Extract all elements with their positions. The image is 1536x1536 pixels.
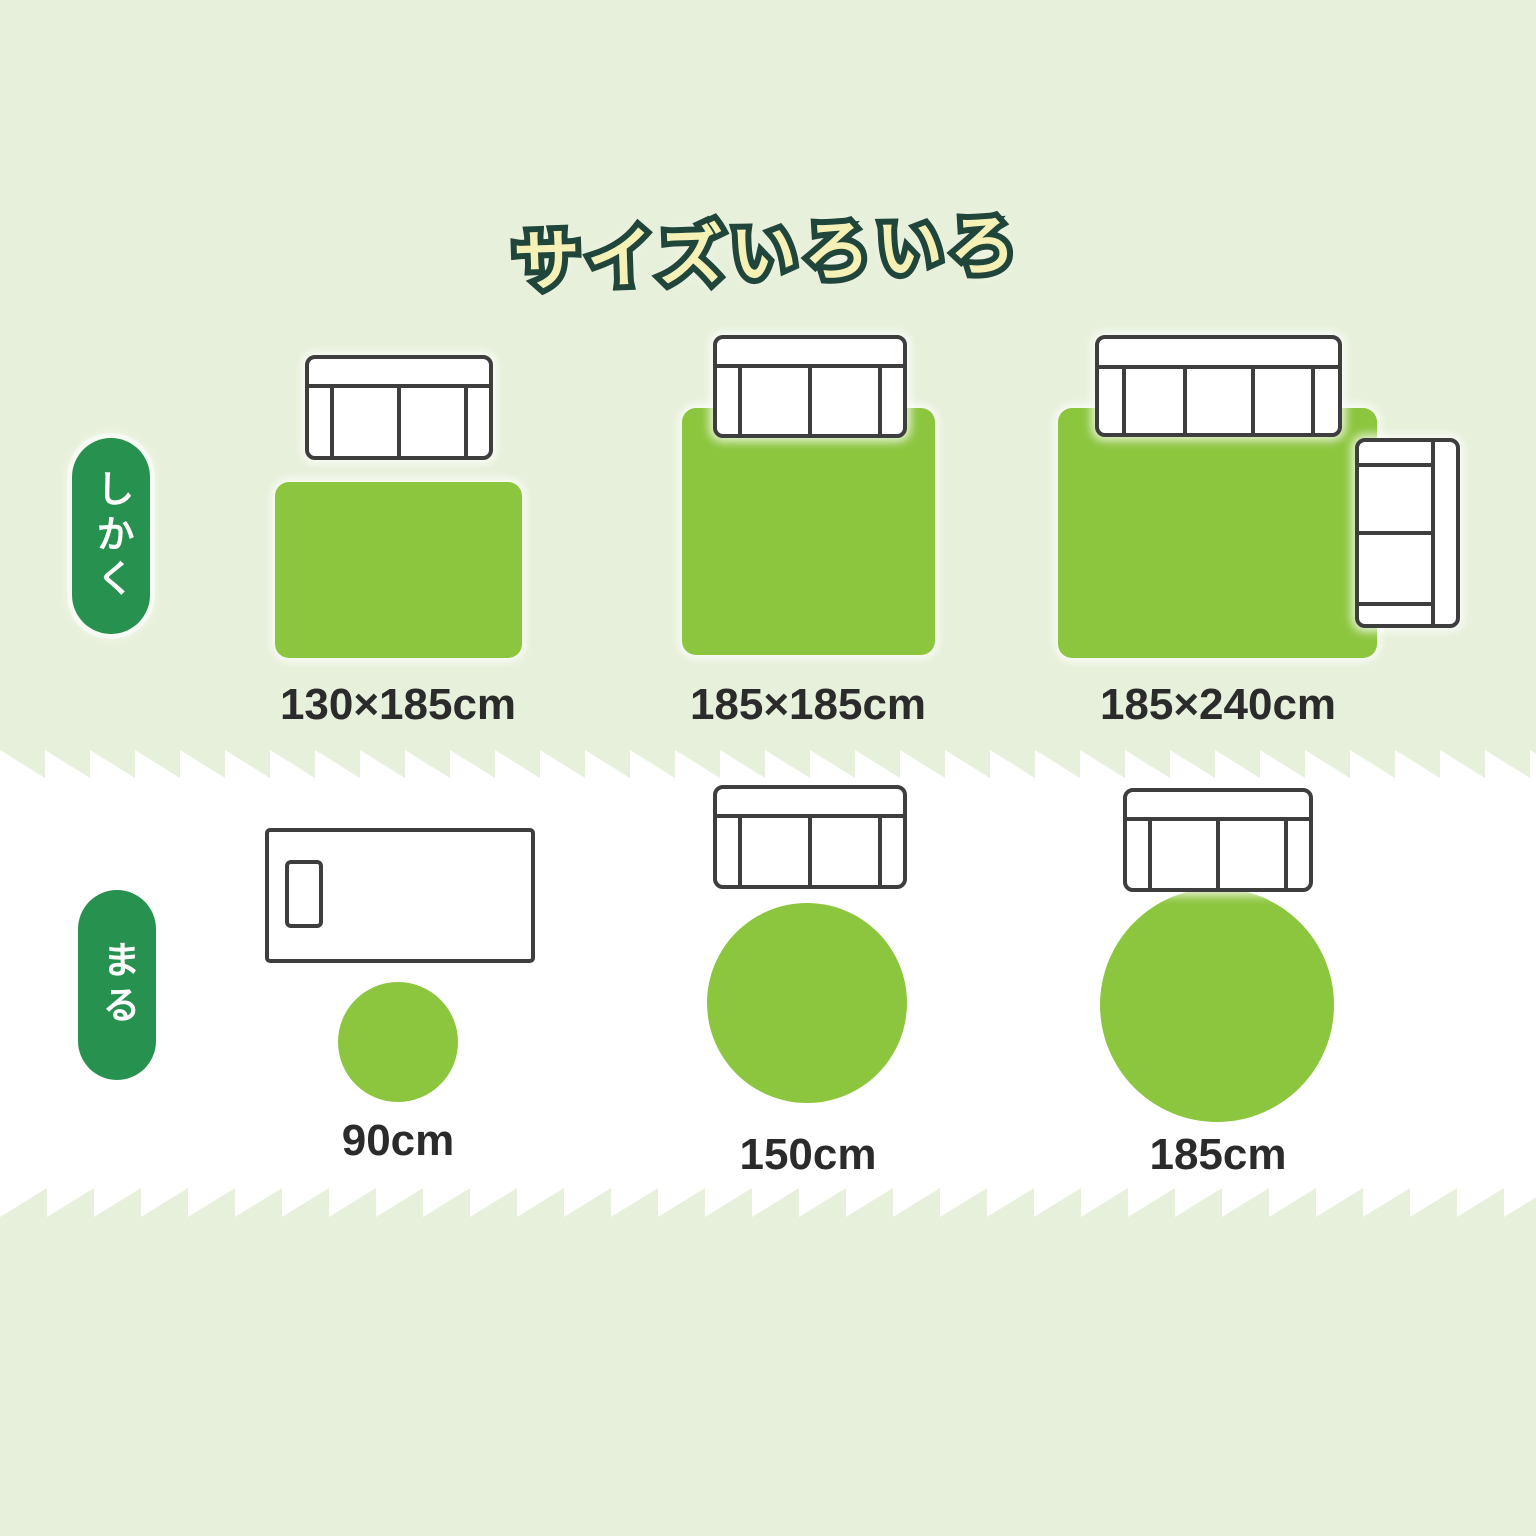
rug-rect-185x240 xyxy=(1058,408,1377,658)
sofa-seat-divider-line xyxy=(1216,817,1220,888)
sofa-armrest-line xyxy=(464,384,468,456)
badge-shikaku: しかく xyxy=(72,438,150,634)
sofa-armrest-line xyxy=(738,814,742,885)
sofa-armrest-line xyxy=(738,364,742,434)
sofa-2seat-top-view-icon xyxy=(1123,788,1313,892)
size-label-185: 185cm xyxy=(1048,1130,1388,1180)
sofa-2seat-top-view-icon xyxy=(713,785,907,889)
sofa-armrest-line xyxy=(878,364,882,434)
sofa-armrest-line xyxy=(1311,365,1315,433)
sofa-armrest-line xyxy=(1359,602,1431,606)
rug-round-90 xyxy=(338,982,458,1102)
sofa-2seat-top-view-icon xyxy=(713,335,907,438)
sofa-backrest-line xyxy=(1431,442,1435,624)
sofa-3seat-top-view-icon xyxy=(1095,335,1342,437)
sofa-armrest-line xyxy=(1359,463,1431,467)
rug-rect-130x185 xyxy=(275,482,522,658)
size-label-90: 90cm xyxy=(228,1116,568,1166)
sofa-2seat-side-top-view-icon xyxy=(1355,438,1460,628)
rug-size-chart: サイズいろいろ サイズいろいろ しかく 130×185cm 185×185cm … xyxy=(0,0,1536,1536)
sofa-backrest-line xyxy=(1099,365,1338,369)
sofa-seat-divider-line xyxy=(1359,531,1431,535)
size-label-150: 150cm xyxy=(638,1130,978,1180)
sofa-armrest-line xyxy=(878,814,882,885)
sofa-seat-divider-line xyxy=(808,364,812,434)
sofa-armrest-line xyxy=(1122,365,1126,433)
badge-shikaku-label: しかく xyxy=(92,469,130,604)
zigzag-border-top xyxy=(0,750,1536,778)
sofa-armrest-line xyxy=(330,384,334,456)
badge-maru-label: まる xyxy=(98,940,136,1030)
sofa-seat-divider-line xyxy=(397,384,401,456)
zigzag-border-bottom xyxy=(0,1188,1536,1217)
size-label-130x185: 130×185cm xyxy=(228,680,568,730)
pillow-icon xyxy=(285,860,323,928)
sofa-2seat-top-view-icon xyxy=(305,355,493,460)
bottom-background xyxy=(0,1217,1536,1536)
rug-round-185 xyxy=(1100,888,1334,1122)
sofa-armrest-line xyxy=(1148,817,1152,888)
badge-maru: まる xyxy=(78,890,156,1080)
sofa-armrest-line xyxy=(1284,817,1288,888)
sofa-seat-divider-line xyxy=(1183,365,1187,433)
sofa-seat-divider-line xyxy=(1251,365,1255,433)
rug-rect-185x185 xyxy=(682,408,935,655)
sofa-seat-divider-line xyxy=(808,814,812,885)
size-label-185x240: 185×240cm xyxy=(1048,680,1388,730)
rug-round-150 xyxy=(707,903,907,1103)
size-label-185x185: 185×185cm xyxy=(638,680,978,730)
bed-top-view-icon xyxy=(265,828,535,963)
